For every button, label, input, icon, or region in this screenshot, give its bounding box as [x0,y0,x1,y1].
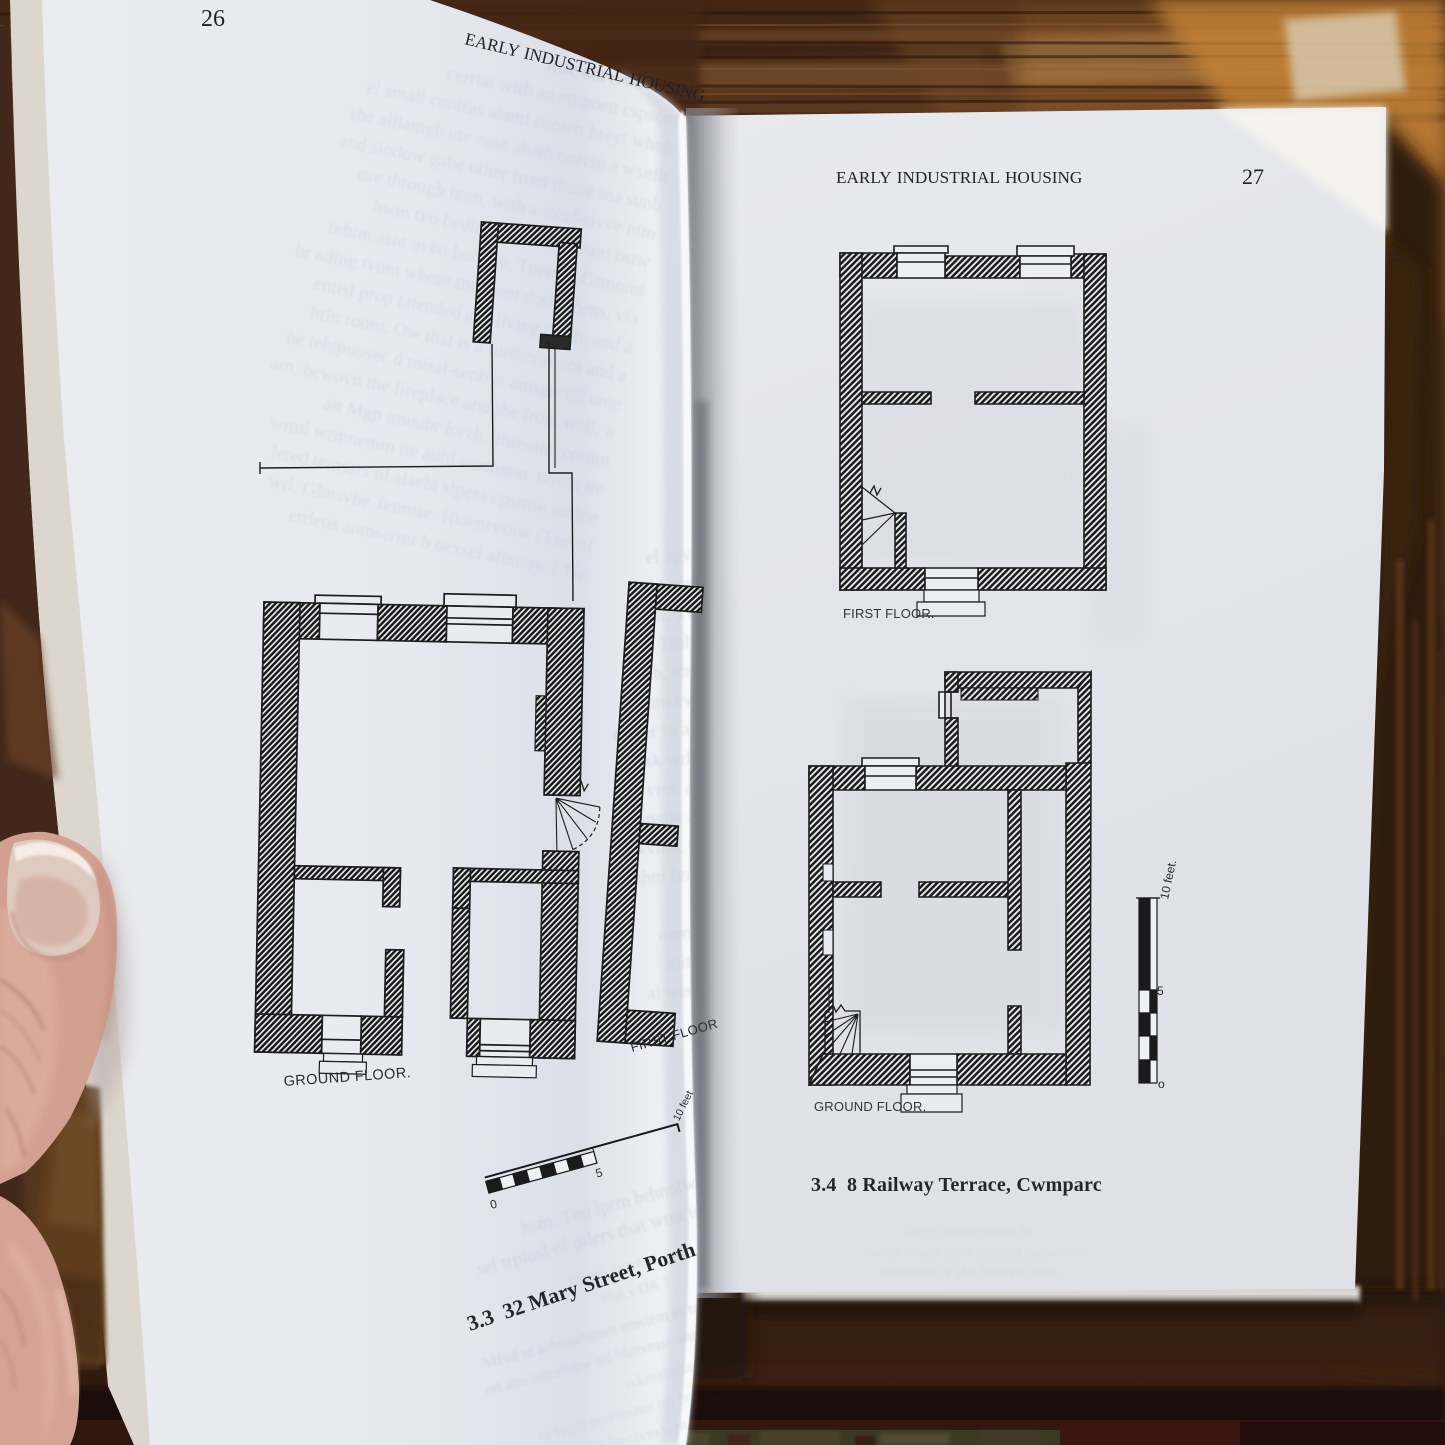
svg-text:el apvl: el apvl [645,544,698,569]
svg-text:emsnmor tv ahn Imnlvm mlw: emsnmor tv ahn Imnlvm mlw [880,1265,1058,1281]
svg-text:3.4 8 Railway Terrace, Cwmpar: 3.4 8 Railway Terrace, Cwmparc [811,1174,1102,1196]
svg-text:5: 5 [1157,984,1164,998]
svg-text:26: 26 [201,6,225,32]
svg-text:FIRST FLOOR.: FIRST FLOOR. [843,606,935,621]
svg-text:GROUND FLOOR.: GROUND FLOOR. [814,1099,926,1114]
svg-text:ahe n lsmvm tvarb ln: ahe n lsmvm tvarb ln [905,1224,1032,1240]
svg-text:27: 27 [1242,164,1264,189]
svg-text:wvnl tv ahn tmvl bmnvhl melw t: wvnl tv ahn tmvl bmnvhl melw tvm [870,1245,1086,1261]
svg-text:o: o [1158,1077,1165,1091]
svg-text:EARLY INDUSTRIAL HOUSING: EARLY INDUSTRIAL HOUSING [836,168,1082,187]
